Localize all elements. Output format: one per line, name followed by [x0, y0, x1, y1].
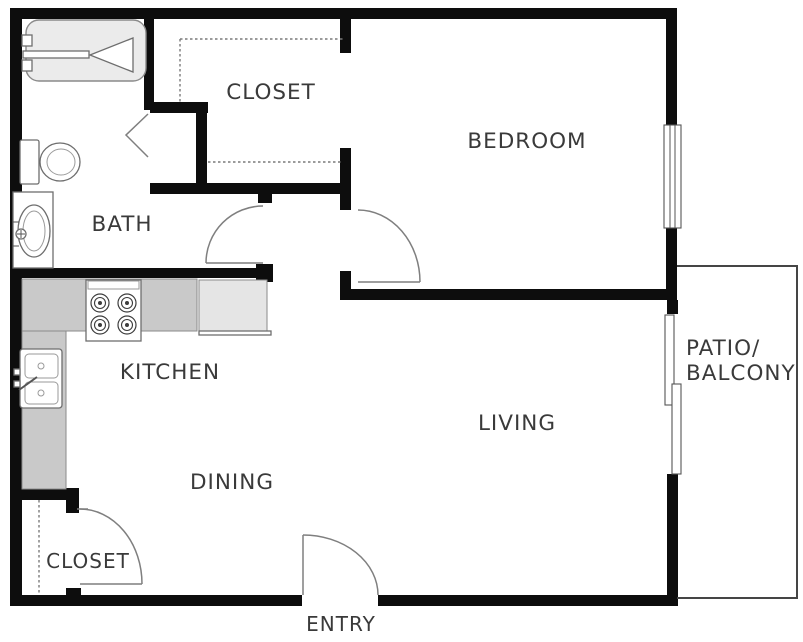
toilet-icon: [20, 140, 80, 184]
wall-bottom-left-of-entry: [10, 595, 302, 606]
wall-kitchen-top-end-block: [256, 264, 273, 282]
kitchen-sink-icon: [14, 349, 62, 408]
patio-label-line1: PATIO/: [686, 336, 760, 361]
refrigerator-body: [199, 280, 267, 331]
bedroom-door-arc: [358, 210, 420, 282]
floor-plan-canvas: BATH CLOSET BEDROOM KITCHEN LIVING DININ…: [0, 0, 803, 642]
closet-bottom-label: CLOSET: [46, 549, 130, 573]
bath-door-swing: [206, 206, 263, 263]
bath-door-arc: [206, 206, 263, 263]
closet-top-label: CLOSET: [226, 80, 316, 105]
bathtub-spout-pipe: [23, 51, 89, 58]
bedroom-label: BEDROOM: [467, 129, 586, 154]
sliding-door-icon: [665, 315, 681, 474]
sliding-door-panel-inner: [672, 384, 681, 474]
room-labels: BATH CLOSET BEDROOM KITCHEN LIVING DININ…: [46, 80, 795, 636]
living-label: LIVING: [478, 411, 556, 436]
floor-plan: BATH CLOSET BEDROOM KITCHEN LIVING DININ…: [0, 0, 803, 642]
bath-label: BATH: [91, 212, 152, 237]
bedroom-door-swing: [358, 210, 420, 282]
wall-kitchen-top: [10, 268, 260, 278]
patio-outline: [677, 266, 797, 598]
entry-door-arc: [303, 535, 378, 595]
wall-living-top: [340, 289, 677, 300]
kitchen-sink-knob: [14, 381, 20, 387]
wall-hall-left: [196, 102, 207, 186]
wall-bedroom-left-upper: [340, 8, 351, 53]
wall-entry-closet-bottom-stub: [66, 588, 81, 600]
kitchen-sink-knob: [14, 369, 20, 375]
dining-label: DINING: [190, 470, 274, 495]
entry-door-swing: [303, 535, 378, 595]
patio-label-line2: BALCONY: [686, 361, 796, 386]
bathtub-tap: [22, 60, 32, 71]
kitchen-label: KITCHEN: [120, 360, 220, 385]
patio-label: PATIO/ BALCONY: [686, 336, 796, 386]
entry-label: ENTRY: [306, 612, 376, 636]
wall-left: [10, 8, 22, 606]
refrigerator-icon: [199, 280, 271, 335]
wall-closet-bottom: [150, 183, 349, 194]
stove-icon: [86, 280, 141, 341]
wall-right-above-window: [666, 8, 677, 125]
bathtub-tap: [22, 35, 32, 46]
window-icon: [664, 125, 681, 228]
window-frame: [664, 125, 681, 228]
wall-right-above-slider: [667, 300, 678, 314]
wall-bottom-right-of-entry: [378, 595, 678, 606]
wall-bedroom-left-lower: [340, 148, 351, 210]
toilet-tank: [20, 140, 39, 184]
bifold-door-icon: [126, 114, 148, 157]
wall-bath-door-stub: [258, 194, 272, 203]
bathtub-icon: [22, 20, 146, 81]
wall-right-below-slider: [667, 474, 678, 606]
bath-sink-icon: [13, 192, 53, 268]
refrigerator-handle-line: [199, 331, 271, 335]
